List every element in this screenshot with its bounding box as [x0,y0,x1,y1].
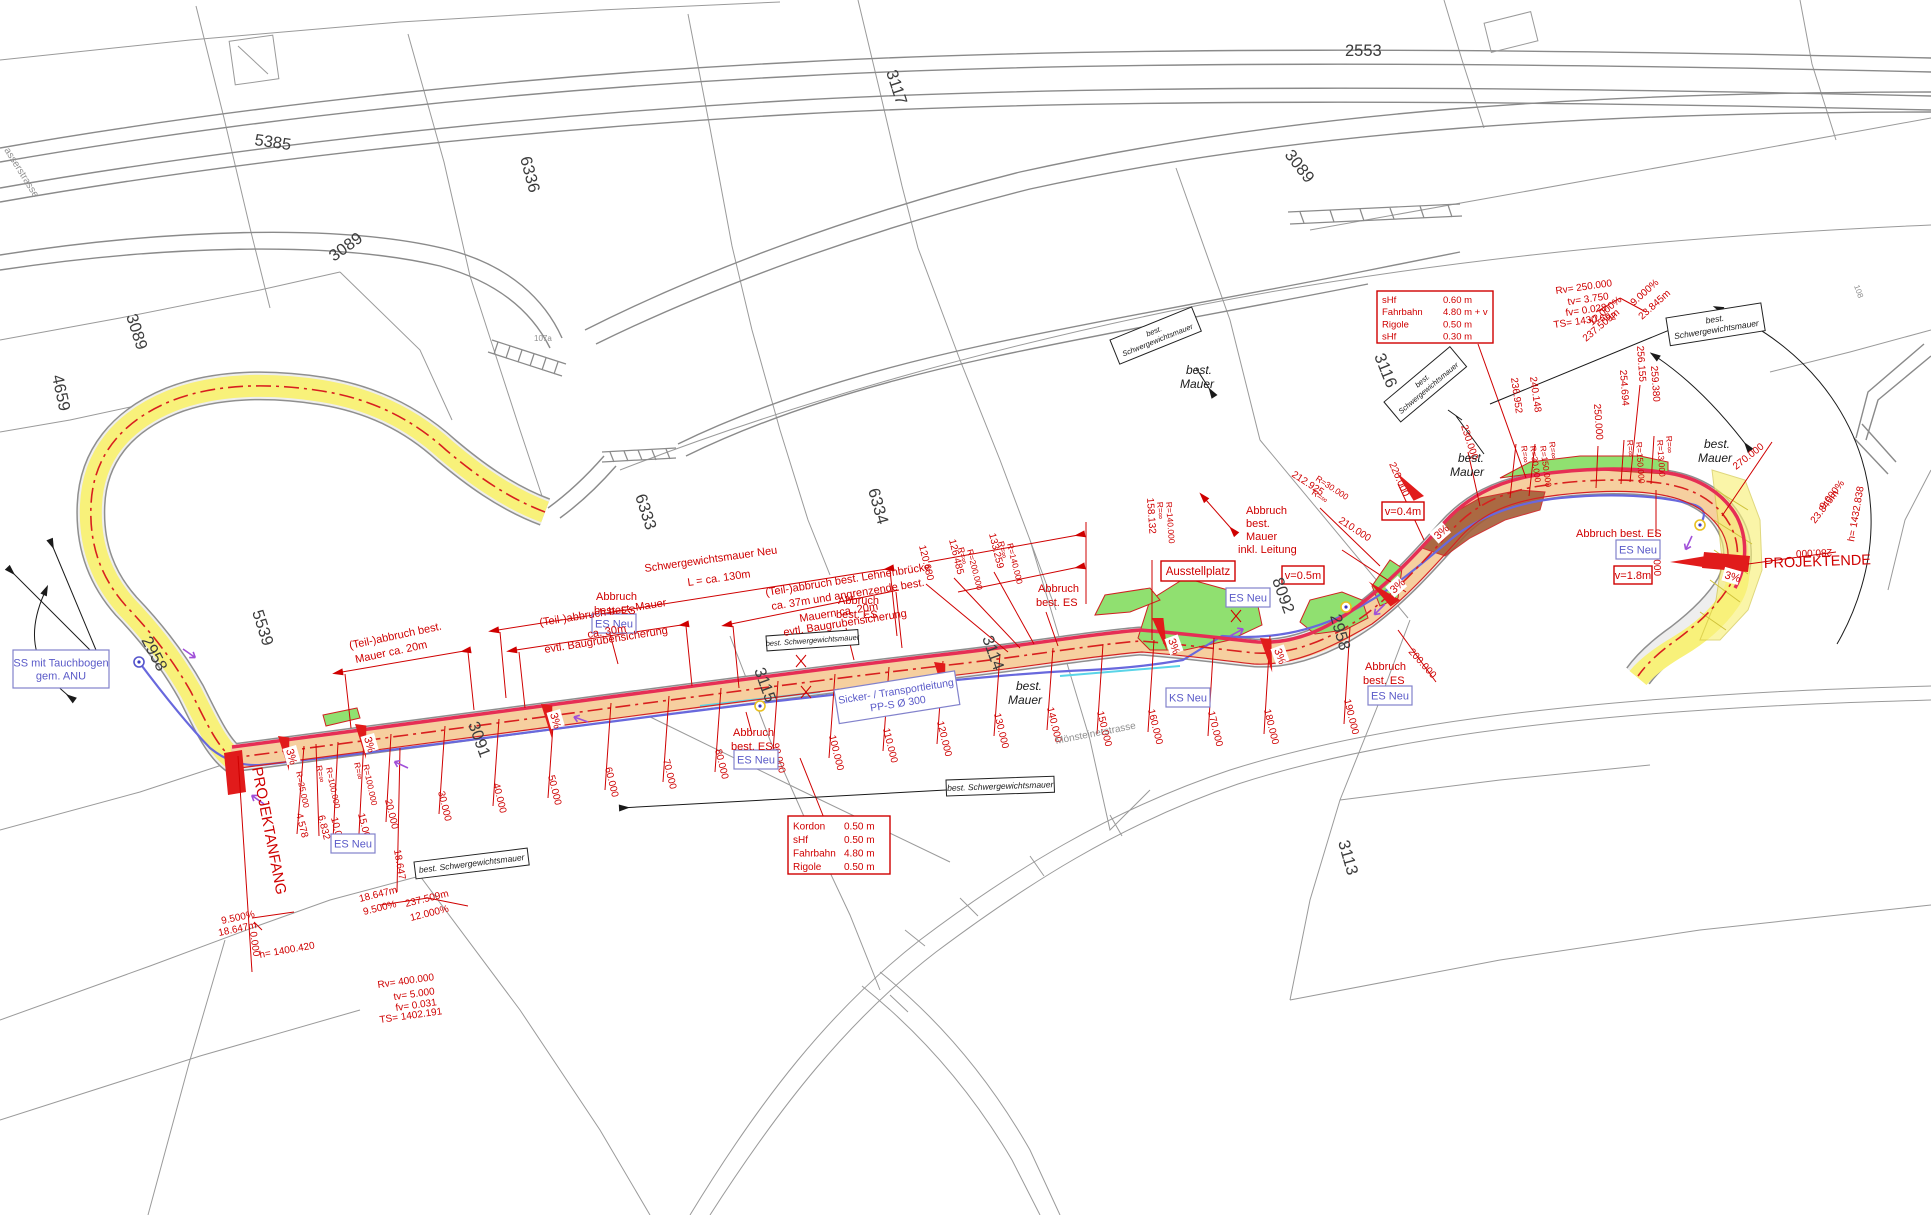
existing-wall-label: Mauer [1450,465,1485,479]
existing-wall-label: Mauer [1698,451,1733,465]
svg-text:Fahrbahn: Fahrbahn [793,848,836,859]
es-neu-label: ES Neu [1226,588,1270,607]
annotation: best. ES [1036,597,1078,609]
shaft-symbol-dot [1698,523,1701,526]
svg-text:0.50 m: 0.50 m [844,862,875,873]
es-neu-label: ES Neu [1368,686,1412,705]
es-neu-label: ES Neu [331,834,375,853]
existing-wall-label: best. [1704,437,1730,451]
svg-text:0.30 m: 0.30 m [1443,331,1472,342]
svg-text:SS mit Tauchbogen: SS mit Tauchbogen [13,657,108,669]
svg-text:ES Neu: ES Neu [334,838,372,850]
svg-text:0.60 m: 0.60 m [1443,295,1472,306]
svg-text:Rigole: Rigole [793,862,822,873]
annotation: Abbruch [1246,505,1287,517]
svg-text:sHf: sHf [1382,295,1397,306]
svg-text:ES Neu: ES Neu [1371,690,1409,702]
annotation: Abbruch best. ES [1576,528,1662,540]
annotation: Abbruch [1365,661,1406,673]
svg-text:KS Neu: KS Neu [1169,692,1207,704]
existing-wall-label: Mauer [1180,377,1215,391]
street-label: 107a [534,334,552,343]
svg-text:Fahrbahn: Fahrbahn [1382,307,1423,318]
plan-svg: 0.0004.5786.83210.00015.00420.00018.6473… [0,0,1931,1215]
svg-text:sHf: sHf [1382,331,1397,342]
parcel-label: 2553 [1345,42,1382,60]
profile-kordon: Kordon0.50 msHf0.50 mFahrbahn4.80 mRigol… [788,816,890,874]
annotation: best. ES [836,609,878,621]
svg-text:gem. ANU: gem. ANU [36,670,86,682]
svg-text:ES Neu: ES Neu [1619,544,1657,556]
existing-wall-label: Mauer [1008,693,1043,707]
ausstellplatz-label: Ausstellplatz [1161,561,1235,581]
svg-text:v=0.5m: v=0.5m [1285,570,1321,582]
existing-wall-label: best. [1458,451,1484,465]
svg-text:Kordon: Kordon [793,821,825,832]
annotation: Abbruch [1038,583,1079,595]
svg-text:Ausstellplatz: Ausstellplatz [1166,566,1231,578]
v-label: v=1.8m [1614,566,1652,584]
annotation: best. ES [594,605,636,617]
svg-text:sHf: sHf [793,835,808,846]
svg-text:v=0.4m: v=0.4m [1385,506,1421,518]
es-neu-label: ES Neu [1616,540,1660,559]
existing-wall-label: best. [1186,363,1212,377]
annotation: Mauer [1246,531,1278,543]
svg-text:Rigole: Rigole [1382,319,1409,330]
existing-wall-label: best. [1016,679,1042,693]
site-plan-canvas: 0.0004.5786.83210.00015.00420.00018.6473… [0,0,1931,1215]
profile-end: sHf0.60 mFahrbahn4.80 m + vRigole0.50 ms… [1377,291,1493,343]
svg-text:0.50 m: 0.50 m [844,821,875,832]
shaft-symbol-dot [137,660,140,663]
svg-text:4.80 m: 4.80 m [844,848,875,859]
svg-text:ES Neu: ES Neu [1229,592,1267,604]
v-label: v=0.4m [1382,502,1424,520]
shaft-symbol-dot [1344,605,1347,608]
ss-tauchbogen-label: SS mit Tauchbogengem. ANU [13,650,109,688]
annotation: inkl. Leitung [1238,544,1297,556]
svg-text:v=1.8m: v=1.8m [1615,570,1651,582]
background [0,0,1931,1215]
svg-text:4.80 m + v: 4.80 m + v [1443,307,1488,318]
ks-neu-label: KS Neu [1166,688,1210,707]
annotation: Abbruch [838,595,879,607]
annotation: Abbruch [596,591,637,603]
annotation: Abbruch [733,727,774,739]
best-schwergewichtsmauer-box: best. Schwergewichtsmauer [946,776,1055,796]
annotation: best. [1246,518,1270,530]
annotation: best. ES [731,741,773,753]
annotation: R=∞ [1664,435,1675,453]
svg-text:ES Neu: ES Neu [737,754,775,766]
shaft-symbol-dot [758,704,761,707]
svg-text:0.50 m: 0.50 m [844,835,875,846]
annotation: best. ES [1363,675,1405,687]
svg-text:0.50 m: 0.50 m [1443,319,1472,330]
